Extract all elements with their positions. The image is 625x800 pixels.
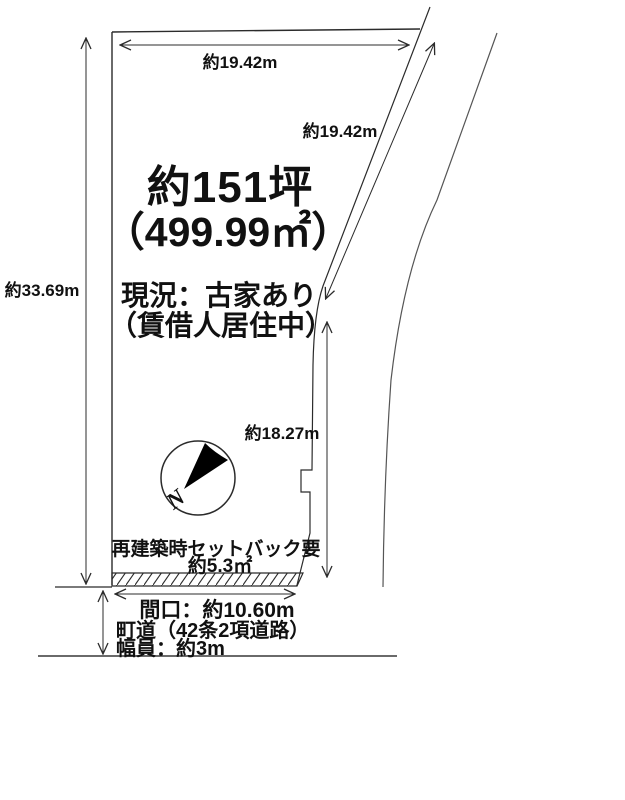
- plot-survey-svg: 約19.42m 約19.42m 約33.69m 約18.27m 約151坪 （4…: [0, 0, 625, 800]
- compass: N: [161, 441, 235, 515]
- dim-label-diagonal-side: 約19.42m: [303, 121, 378, 141]
- area-tsubo-label: 約151坪: [147, 163, 313, 212]
- road-width-label: 幅員：約3m: [116, 636, 225, 660]
- status-line2: （賃借人居住中）: [109, 309, 333, 341]
- plot-boundary-top: [112, 29, 420, 32]
- dim-arrow-diagonal-side: [326, 44, 434, 298]
- frontage-label: 間口：約10.60m: [139, 598, 294, 622]
- land-plot-diagram: 約19.42m 約19.42m 約33.69m 約18.27m 約151坪 （4…: [0, 0, 625, 800]
- area-square-meters-label: （499.99㎡）: [104, 209, 352, 255]
- dim-label-left-height: 約33.69m: [5, 280, 80, 300]
- status-line1: 現況：古家あり: [121, 279, 317, 311]
- dim-label-top-width: 約19.42m: [203, 52, 278, 72]
- setback-note-line2: 約5.3㎡: [188, 554, 252, 577]
- road-far-edge: [383, 33, 497, 587]
- dim-label-right-side: 約18.27m: [245, 423, 320, 443]
